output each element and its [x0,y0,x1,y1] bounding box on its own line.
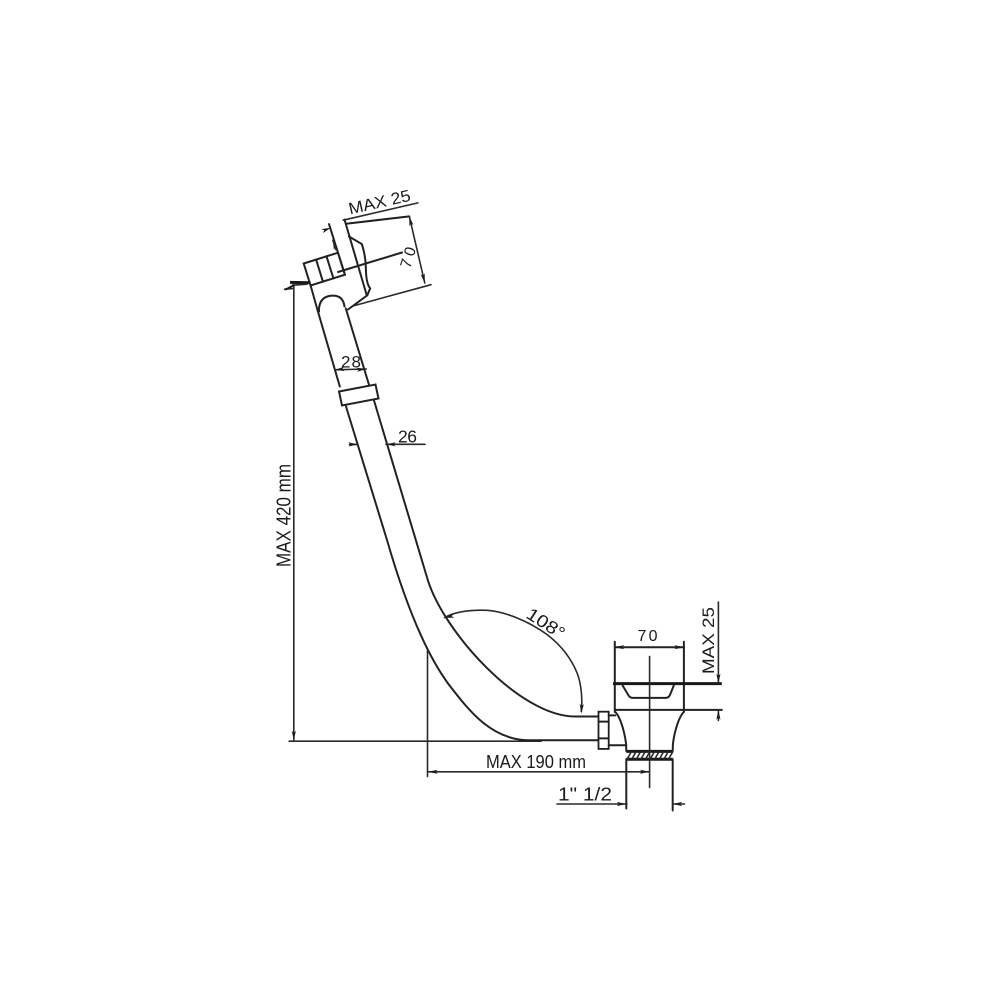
svg-text:MAX 190 mm: MAX 190 mm [486,751,586,772]
svg-text:26: 26 [398,427,417,447]
svg-text:MAX 25: MAX 25 [699,607,718,674]
svg-text:1" 1/2: 1" 1/2 [558,785,612,805]
svg-text:28: 28 [341,353,361,372]
svg-text:MAX 420 mm: MAX 420 mm [273,464,296,567]
